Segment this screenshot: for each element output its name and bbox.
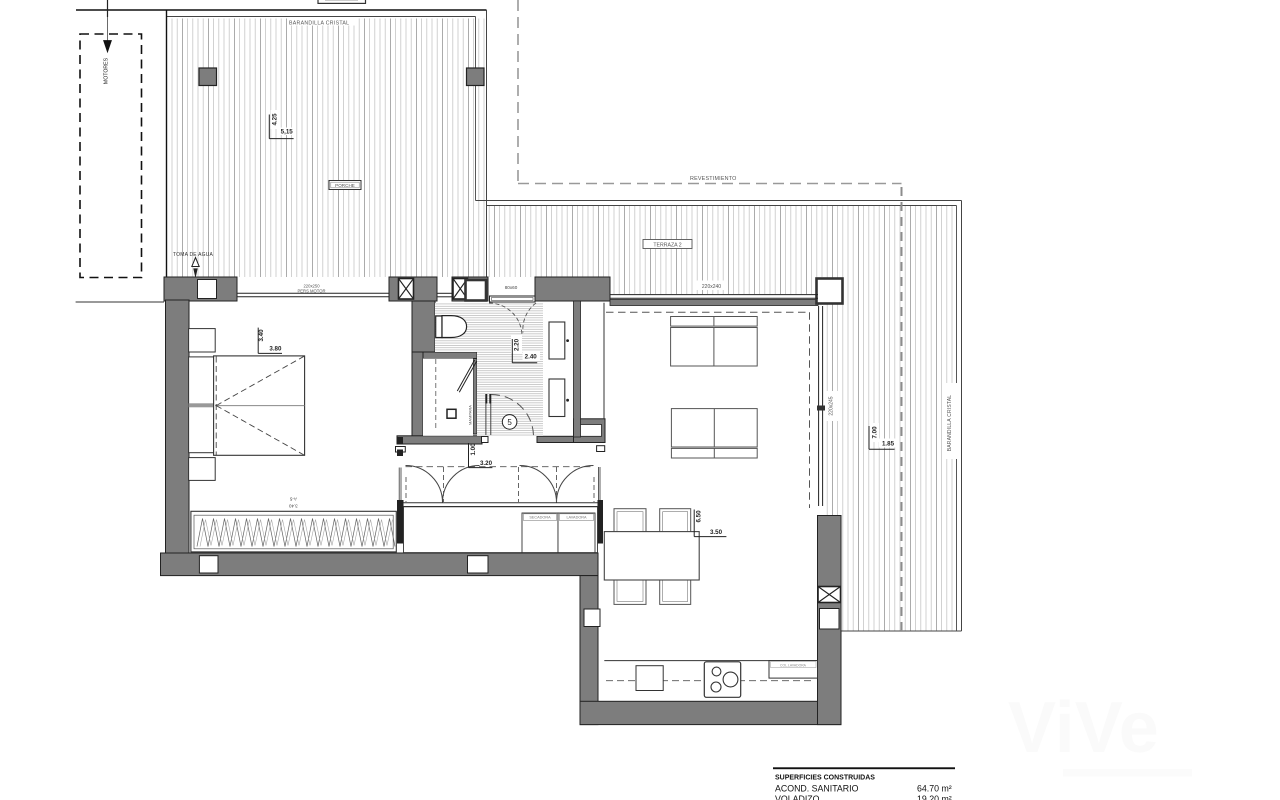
svg-text:3.40: 3.40 (258, 329, 265, 342)
svg-text:6.50: 6.50 (696, 510, 703, 523)
svg-text:SUPERFICIES CONSTRUIDAS: SUPERFICIES CONSTRUIDAS (775, 775, 875, 782)
svg-text:A-5: A-5 (289, 497, 297, 502)
svg-text:PERS MOTOR: PERS MOTOR (297, 288, 325, 293)
svg-text:5,15: 5,15 (281, 129, 294, 136)
svg-text:3.20: 3.20 (480, 460, 493, 467)
svg-text:3.50: 3.50 (710, 529, 723, 536)
svg-text:TERRAZA 2: TERRAZA 2 (653, 242, 681, 248)
svg-text:3.40: 3.40 (288, 504, 297, 509)
svg-text:7.00: 7.00 (872, 426, 879, 439)
svg-text:PORCHE: PORCHE (335, 183, 355, 188)
svg-text:BARANDILLA CRISTAL: BARANDILLA CRISTAL (947, 395, 953, 452)
svg-text:TOMA DE AGUA: TOMA DE AGUA (173, 252, 214, 258)
svg-text:ACOND. SANITARIO: ACOND. SANITARIO (775, 784, 859, 794)
svg-text:2.40: 2.40 (525, 354, 538, 361)
svg-text:3.80: 3.80 (269, 346, 282, 353)
svg-text:2.20: 2.20 (514, 338, 521, 351)
svg-text:64.70 m²: 64.70 m² (917, 784, 952, 794)
svg-text:1.85: 1.85 (882, 441, 895, 448)
svg-text:5: 5 (507, 418, 512, 427)
svg-text:BARANDILLA CRISTAL: BARANDILLA CRISTAL (289, 21, 349, 27)
svg-text:VOLADIZO: VOLADIZO (775, 794, 820, 800)
svg-text:MOTORES: MOTORES (104, 57, 110, 84)
svg-text:COL.LAVADORA: COL.LAVADORA (780, 663, 807, 667)
svg-text:220x240: 220x240 (702, 284, 721, 290)
svg-text:MAMPARA: MAMPARA (467, 405, 472, 425)
svg-text:80x60: 80x60 (505, 285, 518, 290)
svg-text:ViVe: ViVe (1008, 688, 1159, 768)
svg-text:LAVADORA: LAVADORA (566, 515, 587, 519)
svg-text:1.00: 1.00 (470, 443, 477, 456)
svg-text:19.20 m²: 19.20 m² (917, 794, 952, 800)
svg-text:SECADORA: SECADORA (529, 515, 551, 519)
svg-text:REVESTIMIENTO: REVESTIMIENTO (690, 176, 737, 182)
svg-text:220x245: 220x245 (829, 396, 835, 415)
svg-text:4.25: 4.25 (272, 113, 279, 126)
